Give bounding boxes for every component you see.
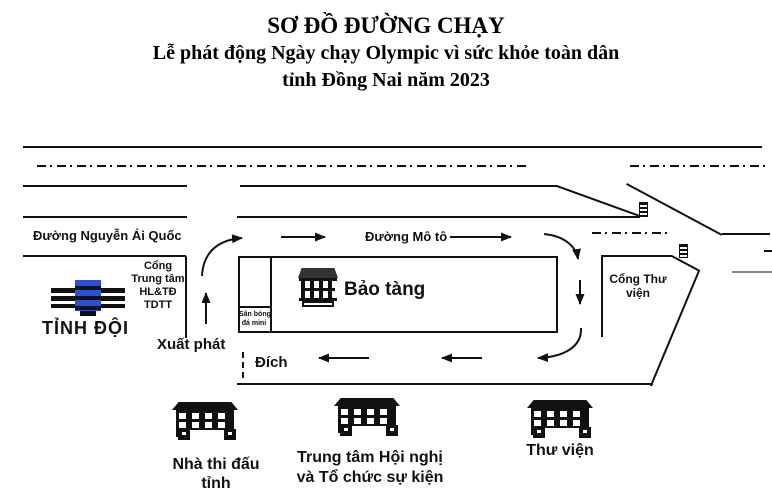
foot (579, 427, 591, 438)
mini-field-line1: Sân bóng (239, 310, 269, 319)
conference-label-line1: Trung tâm Hội nghị (290, 448, 450, 468)
museum-roof (298, 268, 338, 278)
window-row (341, 409, 393, 415)
museum-steps (302, 301, 334, 307)
building-right-wing (101, 288, 125, 308)
window-row (534, 411, 586, 417)
title-line-1: SƠ ĐỒ ĐƯỜNG CHẠY (0, 12, 772, 40)
median-north-edge-left (23, 185, 187, 187)
window-row (534, 420, 586, 426)
return-road-south-edge (237, 383, 653, 385)
median-south-edge-right (237, 216, 640, 218)
title-line-2: Lễ phát động Ngày chạy Olympic vì sức kh… (0, 40, 772, 67)
route-map-page: { "title": { "line1": "SƠ ĐỒ ĐƯỜNG CHẠY"… (0, 0, 772, 500)
conference-label-line2: và Tổ chức sự kiện (290, 468, 450, 488)
conference-center-label: Trung tâm Hội nghị và Tổ chức sự kiện (290, 448, 450, 488)
east-road-south-edge (732, 271, 772, 273)
median-north-edge-right (240, 185, 557, 187)
gate-label-line2: Trung tâm (118, 273, 198, 286)
street-label-mo-to: Đường Mô tô (365, 229, 447, 244)
door-slot (186, 430, 226, 437)
conference-center-building-icon (334, 398, 400, 442)
east-road-north-edge (722, 233, 770, 235)
street-south-edge-left (23, 255, 186, 257)
museum-building-icon (298, 268, 338, 308)
main-road-centerline-left (37, 165, 527, 167)
door-slot (541, 428, 581, 435)
library-north-edge (601, 255, 672, 257)
foot (224, 429, 236, 440)
title-line-3: tỉnh Đồng Nai năm 2023 (0, 67, 772, 93)
gate-training-center-label: Cổng Trung tâm HL&TĐ TDTT (118, 260, 198, 312)
library-building-icon (527, 400, 593, 444)
arrow-turn-right-onto-moto (202, 238, 242, 276)
arena-label-line1: Nhà thi đấu (146, 455, 286, 474)
door-slot (348, 426, 388, 433)
window-row (179, 413, 231, 419)
gate-label-line4: TDTT (118, 299, 198, 312)
slip-road-centerline (592, 232, 670, 234)
window-row (179, 422, 231, 428)
median-taper-diagonal (556, 185, 640, 217)
library-label: Thư viện (495, 441, 625, 460)
start-label: Xuất phát (157, 336, 225, 353)
building-left-wing (51, 288, 75, 308)
library-gate-line1: Cổng Thư (598, 272, 678, 286)
gate-label-line3: HL&TĐ (118, 286, 198, 299)
finish-line-dashed (242, 352, 244, 378)
building-center-tower (75, 280, 101, 311)
finish-label: Đích (255, 354, 288, 371)
window-row (341, 418, 393, 424)
main-road-north-edge (23, 146, 762, 148)
roof (527, 400, 593, 408)
museum-columns (301, 281, 335, 298)
arena-label: Nhà thi đấu tỉnh (146, 455, 286, 493)
tinh-doi-label: TỈNH ĐỘI (42, 318, 129, 339)
roof (334, 398, 400, 406)
museum-label: Bảo tàng (344, 279, 425, 301)
foot (533, 427, 545, 438)
roof (172, 402, 238, 410)
median-south-edge-left (23, 216, 187, 218)
foot (340, 425, 352, 436)
street-label-nguyen-ai-quoc: Đường Nguyễn Ái Quốc (33, 228, 182, 243)
foot (178, 429, 190, 440)
arena-building-icon (172, 402, 238, 446)
mini-field-label: Sân bóng đá mini (239, 310, 269, 328)
mini-field-divider (238, 306, 270, 308)
building-base (80, 311, 96, 316)
east-road-center-dash (764, 250, 772, 252)
library-label-line1: Thư viện (495, 441, 625, 460)
library-gate-line2: viện (598, 286, 678, 300)
foot (386, 425, 398, 436)
library-signpost-icon (679, 244, 688, 258)
museum-block-divider (270, 257, 272, 332)
map-title: SƠ ĐỒ ĐƯỜNG CHẠY Lễ phát động Ngày chạy … (0, 12, 772, 93)
provincial-military-building-icon (51, 280, 125, 317)
gate-label-line1: Cổng (118, 260, 198, 273)
library-gate-label: Cổng Thư viện (598, 272, 678, 300)
median-signpost-icon (639, 202, 648, 217)
main-road-centerline-right (630, 165, 770, 167)
mini-field-line2: đá mini (239, 319, 269, 328)
arena-label-line2: tỉnh (146, 474, 286, 493)
